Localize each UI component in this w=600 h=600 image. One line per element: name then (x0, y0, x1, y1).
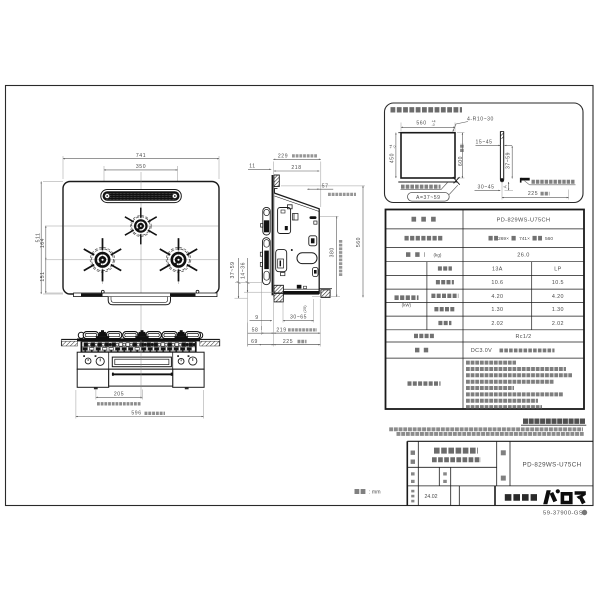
svg-text:: mm: : mm (369, 490, 381, 496)
svg-text:741: 741 (136, 153, 146, 159)
svg-text:1.30: 1.30 (552, 307, 564, 313)
svg-text:LP: LP (554, 267, 561, 273)
svg-text:9: 9 (255, 315, 258, 321)
svg-text:596: 596 (131, 411, 141, 417)
svg-text:PD-829WS-U75CH: PD-829WS-U75CH (523, 461, 582, 468)
svg-text:1.30: 1.30 (491, 307, 503, 313)
svg-text:Rc1/2: Rc1/2 (515, 334, 531, 340)
svg-text:2.02: 2.02 (491, 321, 503, 327)
svg-text:560: 560 (545, 236, 553, 242)
svg-text:26.0: 26.0 (517, 253, 530, 259)
svg-text:151: 151 (40, 271, 46, 281)
svg-text:741×: 741× (519, 236, 530, 242)
svg-text:30~65: 30~65 (290, 315, 307, 321)
svg-text:600: 600 (458, 156, 464, 166)
svg-text:37~59: 37~59 (505, 152, 511, 169)
svg-text:15~45: 15~45 (475, 140, 492, 146)
svg-text:4.20: 4.20 (552, 294, 564, 300)
svg-text:-0: -0 (432, 123, 435, 127)
svg-text:380: 380 (329, 247, 335, 257)
svg-text:69: 69 (251, 339, 258, 345)
svg-text:57: 57 (322, 183, 329, 189)
svg-text:4.20: 4.20 (491, 294, 503, 300)
svg-text:350: 350 (136, 164, 146, 170)
svg-text:37~59: 37~59 (230, 261, 236, 278)
svg-text:10.6: 10.6 (491, 280, 503, 286)
svg-text:229: 229 (278, 153, 288, 159)
svg-text:218: 218 (291, 165, 301, 171)
svg-text:205: 205 (114, 392, 124, 398)
svg-text:58: 58 (252, 327, 259, 333)
svg-text:2.02: 2.02 (552, 321, 564, 327)
svg-text:560: 560 (416, 120, 426, 126)
svg-text:(25): (25) (302, 305, 307, 313)
svg-text:59-37900-GS: 59-37900-GS (543, 511, 583, 517)
svg-text:164: 164 (40, 238, 46, 248)
svg-text:225: 225 (283, 339, 293, 345)
svg-text:10.5: 10.5 (552, 280, 564, 286)
svg-text:11: 11 (249, 163, 255, 169)
svg-text:13A: 13A (492, 267, 503, 273)
svg-text:219: 219 (276, 327, 286, 333)
svg-text:4-R10~30: 4-R10~30 (467, 116, 494, 122)
svg-text:PD-829WS-U75CH: PD-829WS-U75CH (497, 217, 551, 223)
svg-text:(kW): (kW) (402, 303, 412, 308)
svg-text:450: 450 (390, 153, 396, 163)
svg-text:269×: 269× (498, 236, 509, 242)
svg-text:24.02: 24.02 (425, 494, 438, 500)
svg-text:14~36: 14~36 (240, 262, 246, 279)
svg-text:560: 560 (356, 237, 362, 247)
svg-text:A=37~59: A=37~59 (416, 195, 441, 201)
svg-text:30~45: 30~45 (477, 185, 494, 191)
svg-text:225: 225 (528, 191, 538, 197)
svg-text:A: A (502, 185, 507, 188)
svg-text:DC3.0V: DC3.0V (471, 348, 492, 354)
svg-text:-0: -0 (392, 145, 396, 148)
svg-text:(kg): (kg) (434, 252, 442, 257)
